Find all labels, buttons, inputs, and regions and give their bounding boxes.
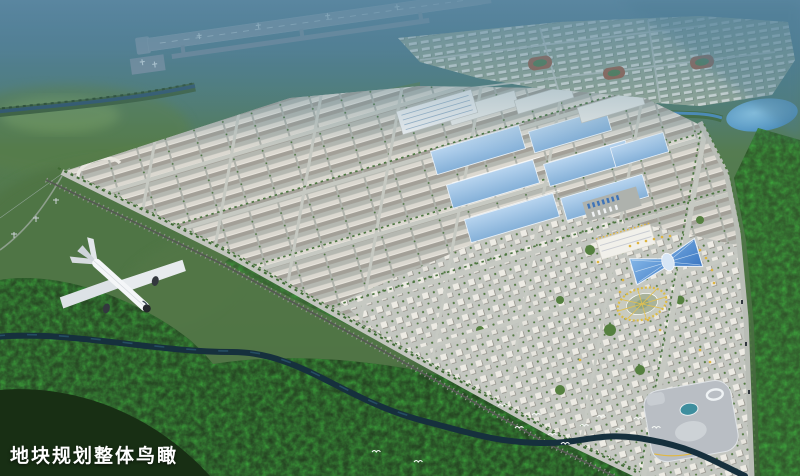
- rendering-canvas: [0, 0, 800, 476]
- aerial-rendering: 地块规划整体鸟瞰: [0, 0, 800, 476]
- caption-text: 地块规划整体鸟瞰: [10, 441, 178, 468]
